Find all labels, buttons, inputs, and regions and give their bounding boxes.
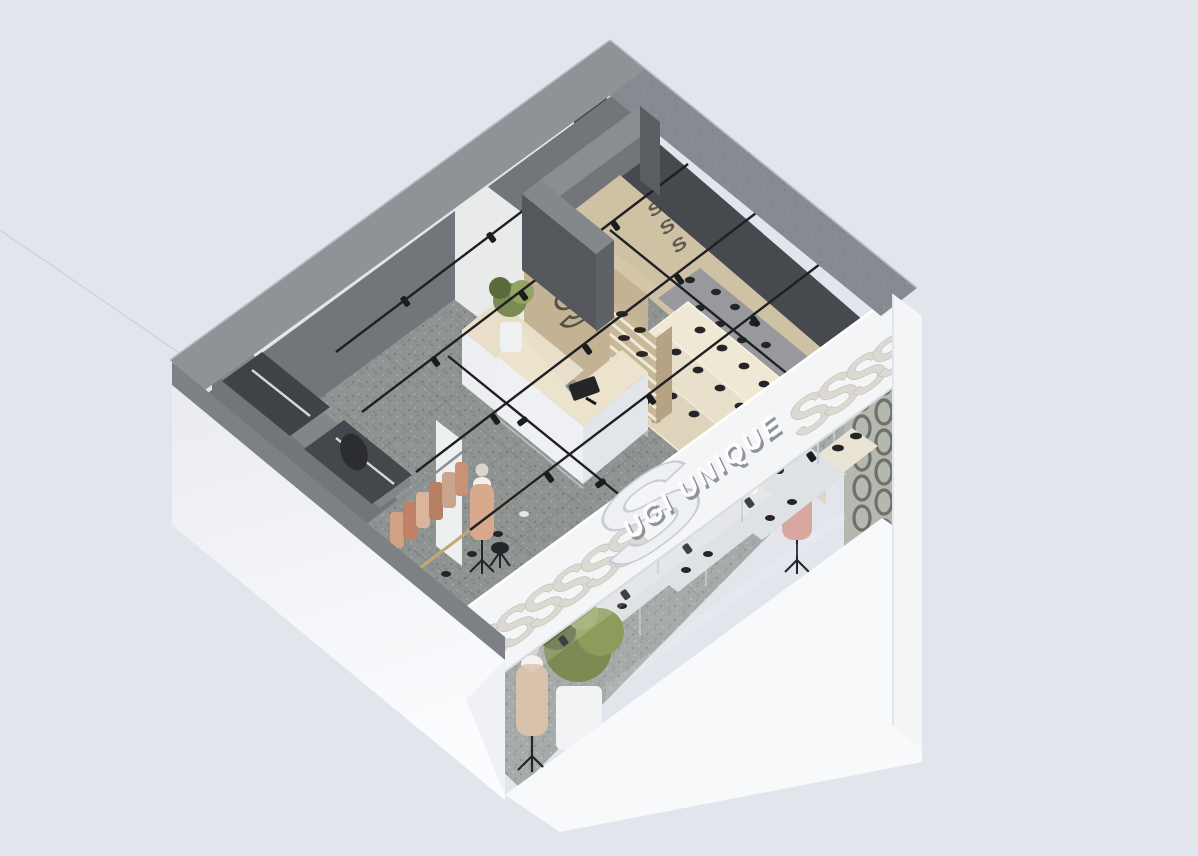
render-stage: S S S S bbox=[0, 0, 1198, 856]
mannequin-left-head bbox=[476, 464, 489, 477]
right-corner-column bbox=[893, 294, 922, 748]
mannequin-left-coat bbox=[470, 484, 494, 540]
plant-pot-small bbox=[500, 322, 522, 352]
mannequin-front-coat bbox=[516, 664, 548, 736]
shoe-tower-side bbox=[656, 326, 672, 424]
store-isometric-render: S S S S bbox=[0, 0, 1198, 856]
